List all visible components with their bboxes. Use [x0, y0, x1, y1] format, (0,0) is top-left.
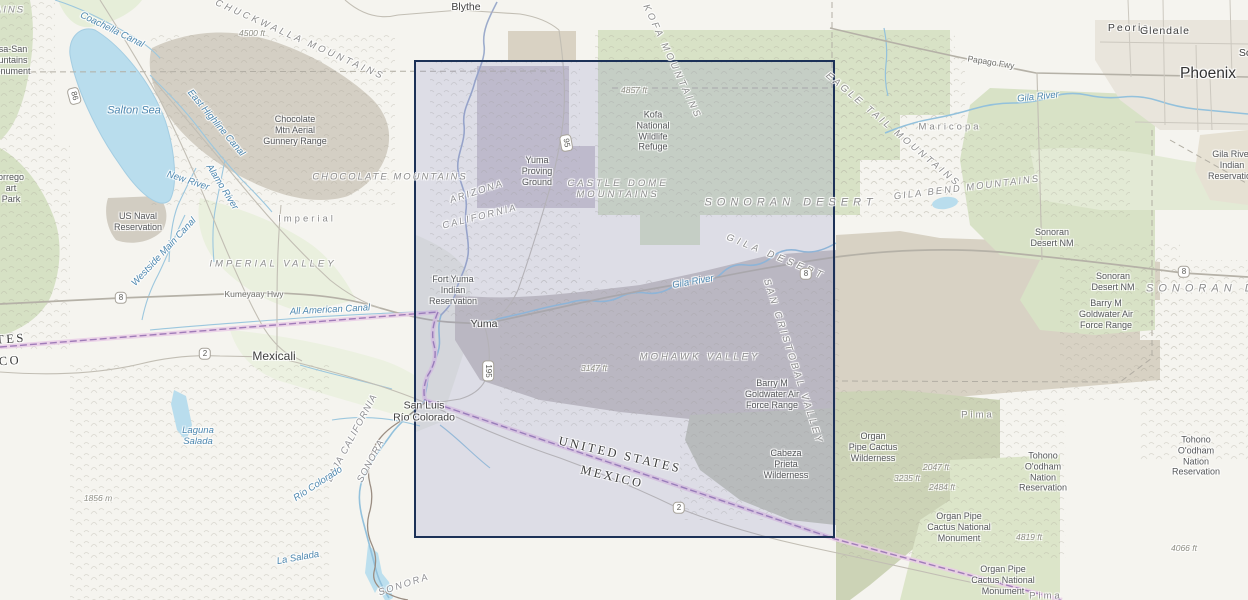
county-imperial: Imperial [278, 213, 336, 224]
city-scottsdale-cut: Sc [1239, 47, 1248, 59]
route-shield-2-mexicali: 2 [199, 348, 211, 360]
city-mexicali: Mexicali [252, 349, 295, 363]
state-sonora-2: SONORA [377, 571, 431, 598]
city-phoenix: Phoenix [1180, 65, 1236, 83]
area-tohono-1: TohonoO'odhamNationReservation [1019, 450, 1067, 493]
area-chocolate-mtn-gunnery: ChocolateMtn AerialGunnery Range [263, 114, 327, 146]
elev-3235ft: 3235 ft [894, 473, 920, 483]
route-shield-195: 195 [482, 360, 494, 381]
water-gila-river-1: Gila River [671, 273, 714, 291]
elev-1856m: 1856 m [84, 493, 112, 503]
route-shield-2-border: 2 [673, 502, 685, 514]
elev-4857ft: 4857 ft [621, 85, 647, 95]
county-maricopa: Maricopa [918, 121, 981, 132]
area-us-naval-reservation: US NavalReservation [114, 211, 162, 233]
border-united-states-cut: TES [0, 331, 26, 348]
area-goldwater-range-1: Barry MGoldwater AirForce Range [745, 378, 799, 410]
water-laguna-salada: LagunaSalada [182, 425, 214, 447]
state-sonora-1: SONORA [355, 438, 387, 485]
area-sonoran-desert-nm-1: SonoranDesert NM [1030, 227, 1073, 249]
road-label-kumeyaay-hwy: Kumeyaay Hwy [224, 289, 283, 299]
area-organ-pipe-nm-1: Organ PipeCactus NationalMonument [927, 511, 991, 543]
area-kofa-nwr: KofaNationalWildlifeRefuge [636, 109, 669, 152]
area-sonoran-desert-nm-2: SonoranDesert NM [1091, 271, 1134, 293]
border-mexico: MEXICO [579, 463, 645, 492]
city-blythe: Blythe [451, 1, 480, 13]
area-organ-pipe-wilderness: OrganPipe CactusWilderness [849, 431, 898, 463]
road-label-papago-fwy: Papago Fwy [967, 53, 1015, 70]
elev-2047ft: 2047 ft [923, 462, 949, 472]
state-california: CALIFORNIA [441, 202, 518, 232]
physio-sonoran-desert-cut: SONORAN DE [1146, 283, 1248, 296]
city-san-luis-rio-colorado: San LuisRío Colorado [393, 400, 455, 425]
water-gila-river-2: Gila River [1017, 89, 1060, 105]
physio-mohawk-valley: MOHAWK VALLEY [640, 351, 761, 362]
water-rio-colorado: Río Colorado [291, 464, 344, 504]
area-fort-yuma: Fort YumaIndianReservation [429, 274, 477, 306]
physio-mtns-cut: AINS [0, 4, 25, 15]
physio-imperial-valley: IMPERIAL VALLEY [209, 258, 336, 269]
route-shield-8-gila: 8 [800, 268, 812, 280]
area-borrego-cut: orregoartPark [0, 172, 24, 204]
border-mexico-cut: CO [0, 353, 22, 369]
area-tohono-2: TohonoO'odhamNationReservation [1172, 434, 1220, 477]
water-east-highline-canal: East Highline Canal [185, 87, 247, 158]
elev-4066ft: 4066 ft [1171, 543, 1197, 553]
area-yuma-proving-ground: YumaProvingGround [522, 155, 553, 187]
physio-kofa-mtns: KOFA MOUNTAINS [640, 3, 703, 122]
water-all-american-canal: All American Canal [290, 302, 371, 317]
physio-gila-desert: GILA DESERT [725, 232, 828, 282]
physio-gila-bend-mtns: GILA BEND MOUNTAINS [893, 173, 1041, 202]
elev-3147ft: 3147 ft [581, 363, 607, 373]
map-canvas[interactable]: BlythePeoriaGlendalePhoenixScMexicaliYum… [0, 0, 1248, 600]
physio-chuckwalla: CHUCKWALLA MOUNTAINS [213, 0, 386, 83]
border-united-states: UNITED STATES [557, 434, 683, 477]
area-goldwater-range-2: Barry MGoldwater AirForce Range [1079, 298, 1133, 330]
elev-4500ft: 4500 ft [239, 28, 265, 38]
area-organ-pipe-nm-2: Organ PipeCactus NationalMonument [971, 564, 1035, 596]
route-shield-8-west: 8 [115, 292, 127, 304]
area-cabeza-prieta: CabezaPrietaWilderness [764, 448, 809, 480]
water-la-salada: La Salada [276, 549, 320, 567]
physio-sonoran-desert: SONORAN DESERT [704, 197, 877, 210]
route-shield-95: 95 [558, 134, 573, 153]
area-gila-river-reservation: Gila RiverIndianReservation [1208, 149, 1248, 181]
route-shield-86: 86 [66, 86, 82, 106]
physio-castle-dome: CASTLE DOMEMOUNTAINS [567, 178, 668, 200]
map-labels-layer: BlythePeoriaGlendalePhoenixScMexicaliYum… [0, 0, 1248, 600]
route-shield-8-east: 8 [1178, 266, 1190, 278]
elev-4819ft: 4819 ft [1016, 532, 1042, 542]
water-coachella-canal: Coachella Canal [78, 10, 146, 51]
physio-chocolate-mtns: CHOCOLATE MOUNTAINS [312, 171, 467, 182]
city-yuma: Yuma [471, 318, 498, 330]
water-salton-sea: Salton Sea [107, 105, 161, 118]
water-new-river: New River [165, 169, 210, 193]
elev-2484ft: 2484 ft [929, 482, 955, 492]
county-pima-1: Pima [961, 409, 995, 420]
physio-san-cristobal: SAN CRISTOBAL VALLEY [761, 278, 825, 447]
area-santa-rosa-cut: sa-Sanuntainsonument [0, 44, 31, 76]
city-glendale: Glendale [1140, 25, 1190, 37]
